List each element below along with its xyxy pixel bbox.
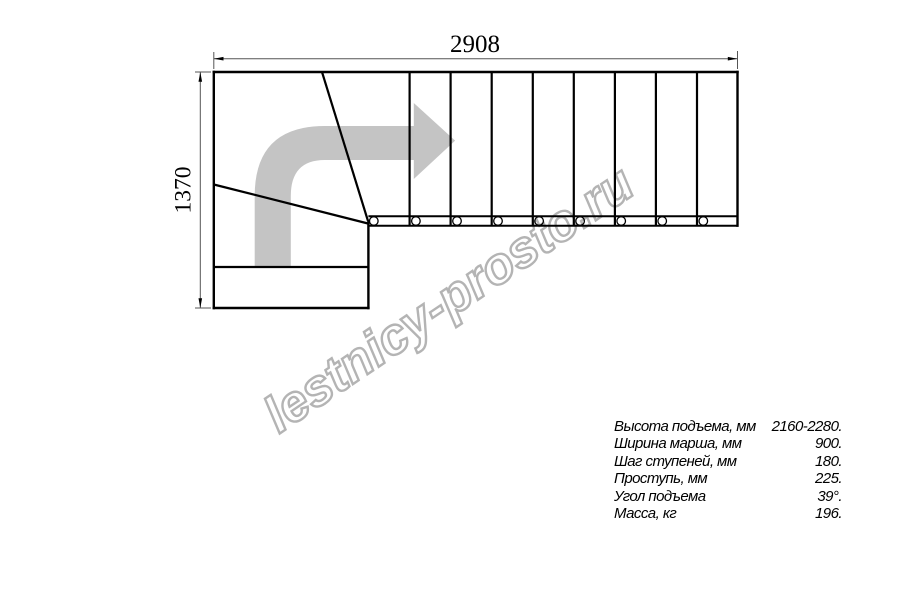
svg-text:lestnicy-prosto.ru: lestnicy-prosto.ru [253,154,643,443]
svg-text:1370: 1370 [171,167,197,214]
svg-text:2908: 2908 [450,31,500,58]
